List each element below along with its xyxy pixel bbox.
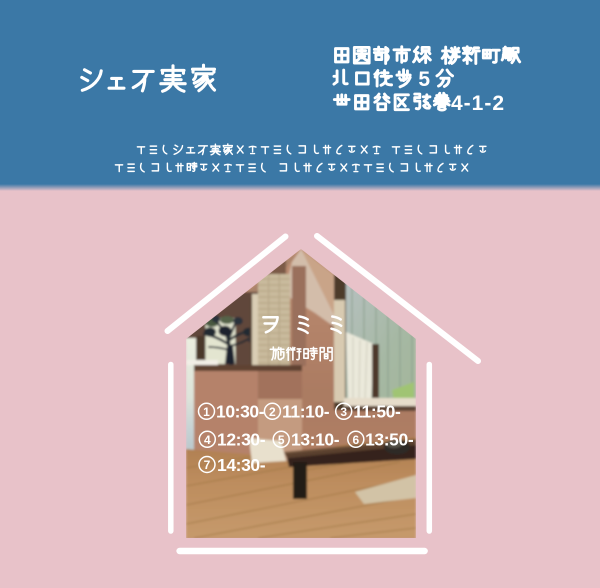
svg-text:4-1-2: 4-1-2 xyxy=(451,92,505,115)
svg-text:6: 6 xyxy=(352,433,359,447)
svg-text:7: 7 xyxy=(204,458,211,472)
svg-text:14:30-: 14:30- xyxy=(217,455,266,475)
svg-text:2: 2 xyxy=(269,405,276,419)
svg-text:12:30-: 12:30- xyxy=(217,430,266,450)
svg-text:13:50-: 13:50- xyxy=(365,430,414,450)
svg-text:1: 1 xyxy=(203,405,210,419)
svg-text:13:10-: 13:10- xyxy=(291,430,340,450)
svg-text:10:30-: 10:30- xyxy=(216,402,265,422)
svg-text:11:50-: 11:50- xyxy=(353,402,401,422)
svg-text:5: 5 xyxy=(418,68,430,91)
svg-text:11:10-: 11:10- xyxy=(282,402,330,422)
svg-text:3: 3 xyxy=(340,405,347,419)
svg-text:4: 4 xyxy=(204,433,211,447)
svg-text:5: 5 xyxy=(278,433,285,447)
